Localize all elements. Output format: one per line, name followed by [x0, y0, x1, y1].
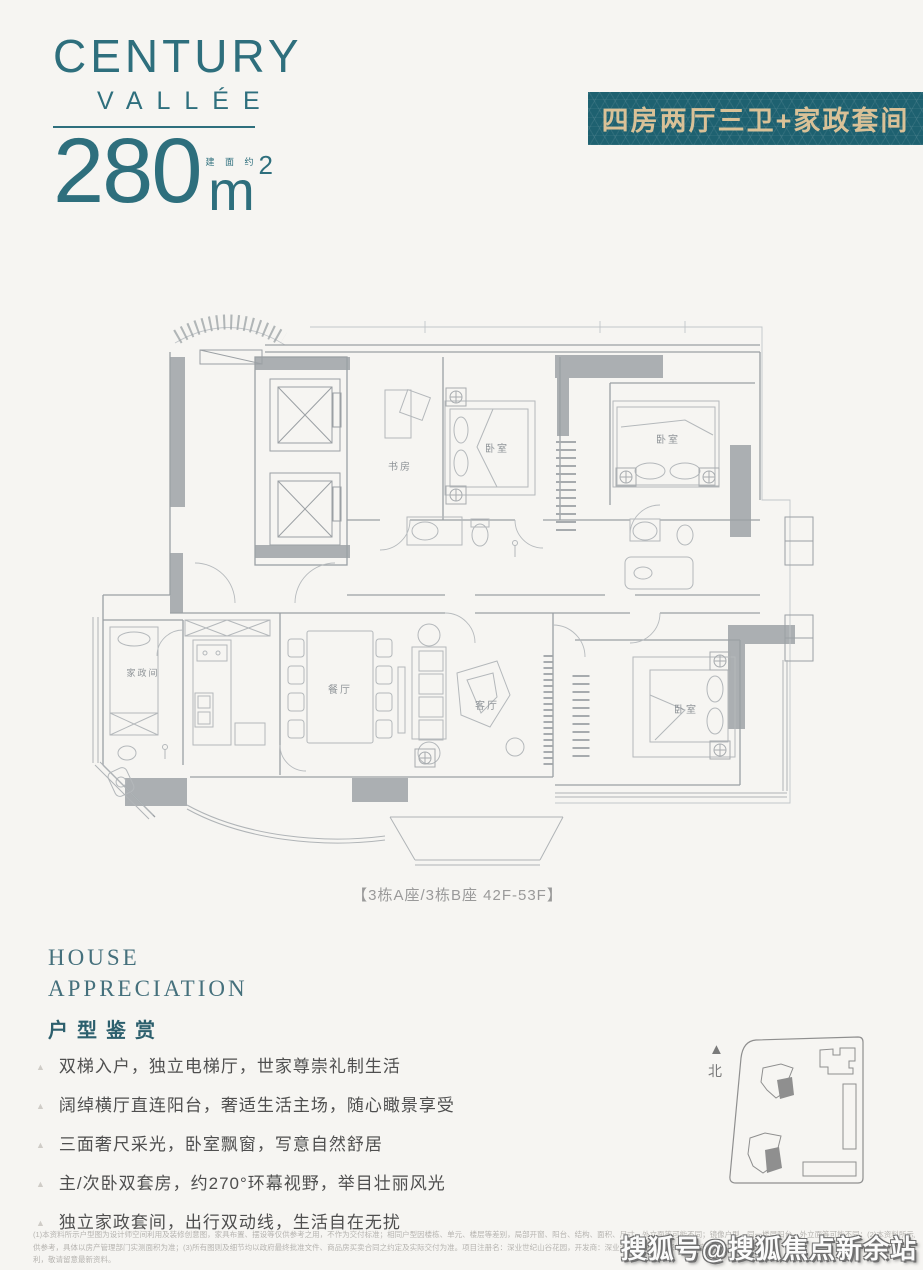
north-label: 北 — [708, 1063, 722, 1079]
bathroom-fixtures — [407, 517, 693, 589]
unit-type-label: 四房两厅三卫+家政套间 — [602, 99, 910, 138]
area-superscript: 2 — [259, 150, 273, 181]
canopy-detail-box — [200, 350, 262, 364]
brand-logo: CENTURY VALLÉE 280 建 面 约 m 2 — [53, 30, 303, 211]
site-tower-a-highlight — [777, 1077, 794, 1099]
appreciation-heading-en: HOUSE APPRECIATION — [48, 942, 248, 1004]
housekeeping-furniture — [106, 627, 167, 798]
sohu-watermark: 搜狐号@搜狐焦点新余站 — [621, 1229, 917, 1266]
floorplan-svg: 书房 卧室 卧室 家政间 餐厅 客厅 卧室 — [85, 295, 830, 885]
feature-item: ▲阔绰横厅直连阳台，奢适生活主场，随心瞰景享受 — [36, 1091, 455, 1116]
feature-item: ▲主/次卧双套房，约270°环幕视野，举目壮丽风光 — [36, 1169, 455, 1194]
site-tower-b-highlight — [765, 1147, 782, 1173]
kitchen-fixtures — [185, 620, 270, 745]
feature-text: 三面奢尺采光，卧室飘窗，写意自然舒居 — [59, 1130, 383, 1155]
siteplan-svg: ▲ 北 — [693, 1026, 883, 1221]
feature-list: ▲双梯入户，独立电梯厅，世家尊崇礼制生活 ▲阔绰横厅直连阳台，奢适生活主场，随心… — [36, 1052, 455, 1247]
bullet-icon: ▲ — [36, 1218, 46, 1228]
room-label-housekeeping: 家政间 — [126, 667, 159, 678]
wall-fills — [125, 355, 795, 806]
feature-text: 主/次卧双套房，约270°环幕视野，举目壮丽风光 — [59, 1169, 446, 1194]
floorplan: 书房 卧室 卧室 家政间 餐厅 客厅 卧室 — [85, 295, 830, 885]
room-label-dining: 餐厅 — [328, 683, 352, 696]
unit-type-banner: 四房两厅三卫+家政套间 — [588, 92, 923, 145]
room-label-bedroom3: 卧室 — [656, 433, 680, 446]
bullet-icon: ▲ — [36, 1101, 46, 1111]
north-arrow-icon: ▲ — [709, 1041, 724, 1058]
feature-item: ▲三面奢尺采光，卧室飘窗，写意自然舒居 — [36, 1130, 455, 1155]
plan-caption: 【3栋A座/3栋B座 42F-53F】 — [85, 884, 830, 905]
area-figure: 280 建 面 约 m 2 — [53, 132, 273, 211]
feature-text: 阔绰横厅直连阳台，奢适生活主场，随心瞰景享受 — [59, 1091, 455, 1116]
site-building-south — [803, 1162, 856, 1176]
living-furniture — [398, 624, 524, 764]
site-building-east — [843, 1084, 856, 1149]
room-label-living: 客厅 — [475, 699, 499, 712]
site-building-north — [820, 1048, 855, 1074]
walls — [103, 345, 760, 817]
appreciation-heading-zh: 户型鉴赏 — [48, 1014, 164, 1043]
siteplan: ▲ 北 — [693, 1026, 883, 1221]
canopy-hatch — [177, 322, 283, 339]
bullet-icon: ▲ — [36, 1179, 46, 1189]
elevator-shafts — [270, 379, 341, 545]
room-label-study: 书房 — [388, 460, 412, 473]
bullet-icon: ▲ — [36, 1140, 46, 1150]
brand-name-line2: VALLÉE — [97, 86, 303, 116]
feature-item: ▲双梯入户，独立电梯厅，世家尊崇礼制生活 — [36, 1052, 455, 1077]
outer-boundary — [175, 321, 790, 803]
area-unit: m — [208, 171, 255, 211]
room-label-bedroom2: 卧室 — [485, 442, 509, 455]
area-value: 280 — [53, 132, 201, 211]
brand-name-line1: CENTURY — [53, 30, 303, 82]
feature-text: 双梯入户，独立电梯厅，世家尊崇礼制生活 — [59, 1052, 401, 1077]
study-furniture — [385, 390, 430, 438]
room-label-bedroom4: 卧室 — [674, 703, 698, 716]
bullet-icon: ▲ — [36, 1062, 46, 1072]
